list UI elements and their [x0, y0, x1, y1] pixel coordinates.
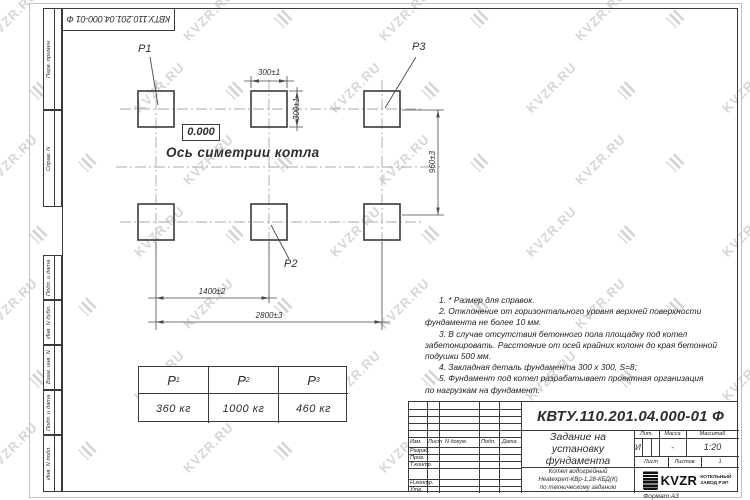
note-line: по нагрузкам на фундамент. — [425, 385, 727, 396]
load-table-header-p3: P3 — [279, 367, 348, 394]
top-doc-number-text: КВТУ.110.201.04.000-01 Ф — [63, 9, 174, 30]
note-line: подушки 500 мм. — [425, 351, 727, 362]
sheets-label: Листов — [668, 456, 701, 467]
load-table: P1 P2 P3 360 кг 1000 кг 460 кг — [138, 366, 347, 422]
rev-header-data: Дата — [502, 439, 517, 445]
stamp-podp-data-1: Подп. и дата — [43, 255, 62, 300]
dim-row-spacing-text: 960±3 — [428, 144, 438, 180]
note-line: 4. Закладная деталь фундамента 300 x 300… — [425, 362, 727, 373]
dim-total-span-text: 2800±3 — [239, 311, 299, 320]
rev-header-list: Лист — [428, 439, 442, 445]
note-line: забетонировать. Расстояние от осей крайн… — [425, 340, 727, 351]
sign-tkontr: Т.контр. — [410, 462, 432, 468]
note-line: 3. В случае отсутствия бетонного пола пл… — [425, 329, 727, 340]
symmetry-axis-label: Ось симетрии котла — [166, 145, 320, 160]
sheet-label: Лист — [634, 456, 668, 467]
stamp-inv-podl: Инв. N подл. — [43, 435, 62, 492]
top-doc-number-stamp: КВТУ.110.201.04.000-01 Ф — [62, 8, 175, 31]
load-table-header-p2: P2 — [209, 367, 279, 394]
load-table-header-p1: P1 — [139, 367, 209, 394]
pad-label-p2: P2 — [284, 258, 297, 270]
mass-value: - — [659, 438, 686, 456]
stamp-vzam-inv: Взам. инв. N — [43, 345, 62, 390]
stamp-inv-dubl: Инв. N дубл. — [43, 300, 62, 345]
load-value-p1: 360 кг — [139, 394, 209, 423]
dim-pad-height-text: 300±1 — [292, 91, 302, 127]
leader-p1 — [150, 57, 158, 105]
format-label: Формат А3 — [626, 493, 696, 500]
elevation-marker: 0.000 — [182, 124, 220, 141]
note-line: 1. * Размер для справок. — [425, 295, 727, 306]
lit-header: Лит. — [634, 430, 659, 438]
kvzr-logo-icon — [643, 471, 658, 490]
rev-header-podp: Подп. — [481, 439, 496, 445]
company-cell: KVZR КОТЕЛЬНЫЙ ЗАВОД РЭП — [635, 468, 739, 493]
note-line: фундамента не более 10 мм. — [425, 317, 727, 328]
stamp-podp-data-2: Подп. и дата — [43, 390, 62, 435]
sign-nkontr: Н.контр. — [410, 480, 433, 486]
scale-value: 1:20 — [686, 438, 739, 456]
title-block: Изм. Лист N докум. Подп. Дата Разраб. Пр… — [408, 401, 738, 492]
load-value-p2: 1000 кг — [209, 394, 279, 423]
title-doc-number: КВТУ.110.201.04.000-01 Ф — [522, 402, 739, 430]
sign-prov: Пров. — [410, 455, 425, 461]
dim-pad-width-text: 300±1 — [239, 68, 299, 77]
note-line: 2. Отклонение от горизонтального уровня … — [425, 306, 727, 317]
kvzr-logo-text: KVZR — [661, 473, 698, 488]
drawing-subtitle: Котел водогрейный Heatexpert-КВр-1,28-КБ… — [522, 467, 634, 493]
stamp-sprav-n: Справ. N — [43, 110, 62, 207]
drawing-page: KVZR.RUKVZR.RUKVZR.RUKVZR.RUKVZR.RUKVZR.… — [0, 0, 750, 500]
sheets-count-value: 1 — [701, 456, 739, 467]
sign-utv: Утв. — [410, 487, 423, 493]
rev-header-dokum: N докум. — [445, 439, 467, 445]
pad-label-p1: P1 — [138, 43, 151, 55]
dim-col-spacing-text: 1400±2 — [182, 287, 242, 296]
rev-header-izm: Изм. — [410, 439, 422, 445]
scale-header: Масштаб — [686, 430, 739, 438]
stamp-perv-primen: Перв. примен. — [43, 8, 62, 110]
pad-label-p3: P3 — [412, 41, 425, 53]
lit-value: И — [634, 438, 642, 456]
drawing-title: Задание на установку фундамента — [522, 430, 634, 467]
technical-notes: 1. * Размер для справок. 2. Отклонение о… — [425, 295, 727, 396]
note-line: 5. Фундамент под котел разрабатывает про… — [425, 373, 727, 384]
mass-header: Масса — [659, 430, 686, 438]
load-value-p3: 460 кг — [279, 394, 348, 423]
company-name: КОТЕЛЬНЫЙ ЗАВОД РЭП — [700, 475, 731, 486]
sign-razrab: Разраб. — [410, 448, 430, 454]
